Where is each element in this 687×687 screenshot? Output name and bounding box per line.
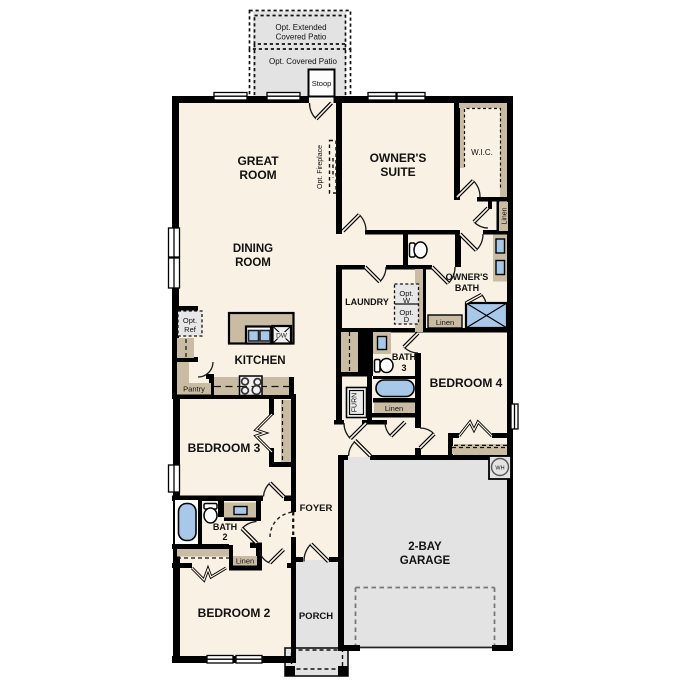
svg-text:BEDROOM 4: BEDROOM 4 xyxy=(430,376,503,390)
svg-text:BATH: BATH xyxy=(455,283,479,293)
svg-text:Linen: Linen xyxy=(436,318,454,327)
svg-text:WH: WH xyxy=(495,466,504,472)
svg-text:GREAT: GREAT xyxy=(237,154,279,168)
svg-text:SUITE: SUITE xyxy=(380,165,415,179)
svg-text:ROOM: ROOM xyxy=(239,168,276,182)
svg-text:GARAGE: GARAGE xyxy=(400,555,451,567)
svg-text:W: W xyxy=(403,296,411,305)
svg-text:DINING: DINING xyxy=(233,243,273,255)
svg-text:PORCH: PORCH xyxy=(299,611,333,622)
svg-text:Covered Patio: Covered Patio xyxy=(276,33,327,42)
svg-text:Stoop: Stoop xyxy=(312,79,332,88)
svg-text:W.I.C.: W.I.C. xyxy=(471,148,493,157)
svg-text:3: 3 xyxy=(401,363,406,373)
svg-text:BEDROOM 3: BEDROOM 3 xyxy=(188,441,261,455)
svg-text:BATH: BATH xyxy=(392,352,416,362)
svg-text:DW: DW xyxy=(276,333,288,340)
svg-text:Pantry: Pantry xyxy=(183,385,205,394)
svg-text:FOYER: FOYER xyxy=(300,503,333,514)
svg-text:Linen: Linen xyxy=(502,207,509,224)
svg-text:KITCHEN: KITCHEN xyxy=(234,355,285,367)
svg-text:OWNER'S: OWNER'S xyxy=(370,151,427,165)
svg-text:BATH: BATH xyxy=(213,522,237,532)
svg-text:Opt. Extended: Opt. Extended xyxy=(275,23,326,32)
svg-text:LAUNDRY: LAUNDRY xyxy=(345,297,389,307)
svg-text:Opt. Fireplace: Opt. Fireplace xyxy=(317,145,324,189)
svg-text:Opt. Covered Patio: Opt. Covered Patio xyxy=(269,57,338,66)
svg-text:BEDROOM 2: BEDROOM 2 xyxy=(198,606,271,620)
svg-text:OWNER'S: OWNER'S xyxy=(446,272,489,282)
svg-text:ROOM: ROOM xyxy=(235,257,271,269)
svg-text:Ref: Ref xyxy=(184,325,197,334)
svg-text:2: 2 xyxy=(222,532,227,542)
svg-text:FURN: FURN xyxy=(352,393,359,412)
svg-text:Linen: Linen xyxy=(385,404,403,413)
svg-text:D: D xyxy=(404,315,410,324)
svg-text:Linen: Linen xyxy=(236,557,254,566)
svg-text:2-BAY: 2-BAY xyxy=(408,541,442,553)
svg-text:Opt.: Opt. xyxy=(183,316,197,325)
